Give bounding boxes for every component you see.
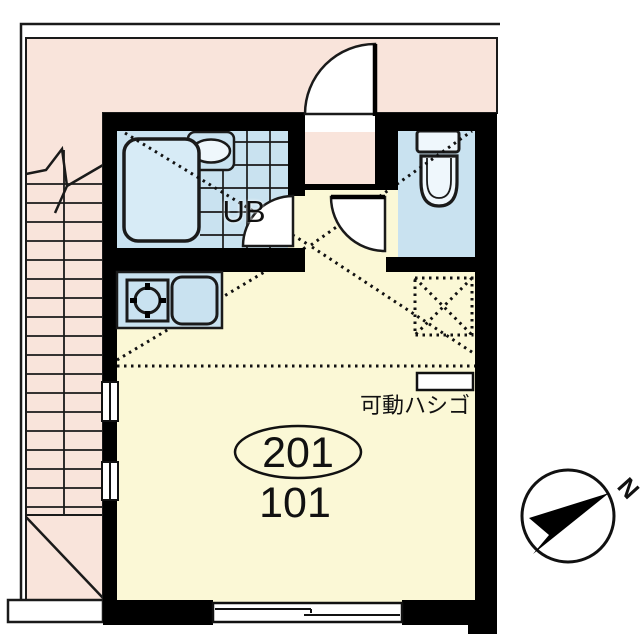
genkan-floor <box>305 130 375 190</box>
toilet-tank <box>417 131 459 152</box>
floor-plan-drawing: 可動ハシゴ UB 201 101 N <box>0 0 640 640</box>
room-number-below: 101 <box>259 479 331 527</box>
wall-toilet-bottom <box>386 257 497 272</box>
wall-bottom-left <box>103 600 213 625</box>
kitchenette <box>117 272 222 328</box>
entry-porch-step <box>8 600 103 622</box>
floor-plan-page: 可動ハシゴ UB 201 101 N <box>0 0 640 640</box>
room-number-circled: 201 <box>262 429 334 477</box>
wall-top-left <box>103 113 305 131</box>
wall-toilet-left <box>375 113 398 190</box>
wall-right <box>475 113 497 632</box>
movable-ladder-symbol <box>417 373 473 390</box>
toilet-room <box>398 130 475 257</box>
genkan-step-edge <box>305 184 375 190</box>
bottom-sliding-window <box>213 603 402 622</box>
unit-bath-label: UB <box>222 194 265 229</box>
wall-bath-right <box>288 113 305 196</box>
wall-left <box>103 113 117 625</box>
wall-corner-block <box>468 600 497 634</box>
kitchen-sink <box>172 277 217 324</box>
movable-ladder-label: 可動ハシゴ <box>360 393 470 418</box>
wall-bath-bottom <box>103 248 305 272</box>
